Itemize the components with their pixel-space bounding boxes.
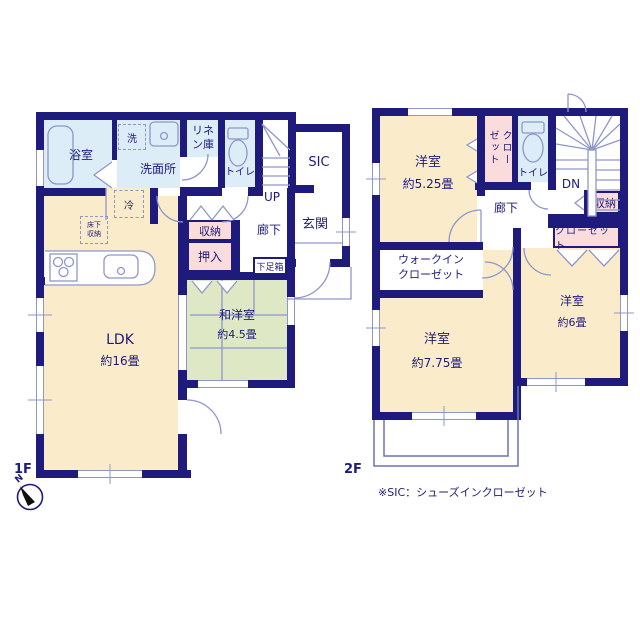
floor2-label: 2F [344, 462, 372, 478]
bedroom1-size-label: 約5.25畳 [396, 177, 460, 192]
sic-label: SIC [297, 155, 341, 171]
hallway-1f-label: 廊下 [249, 223, 289, 238]
toilet-1f-label: トイレ [225, 167, 255, 180]
toilet-2f-label: トイレ [518, 168, 548, 181]
bedroom2-size-label: 約7.75畳 [403, 356, 471, 371]
ldk-label: LDK [85, 332, 155, 350]
porch-outline [287, 267, 351, 299]
fixtures [28, 94, 634, 484]
stairs-up-icon [262, 124, 290, 185]
bathroom-label: 浴室 [59, 148, 103, 163]
toilet-icon-2f [522, 122, 544, 133]
stairs-up-label: UP [256, 190, 288, 205]
stairs-down-icon [556, 116, 620, 216]
ldk-size-label: 約16畳 [85, 354, 155, 369]
bedroom1-label: 洋室 [402, 155, 454, 171]
sic-note: ※SIC：シューズインクローゼット [378, 486, 598, 500]
bedroom3-label: 洋室 [548, 294, 596, 309]
stairs-down-label: DN [556, 177, 586, 192]
floor-plan: 収納 押入 下足箱 収納 クローゼット 洗 冷 床下収納 [0, 0, 640, 640]
fixtures-overlay [0, 0, 640, 640]
balcony-outline [374, 386, 518, 466]
washroom-label: 洗面所 [130, 162, 186, 177]
closet1-label: クローゼット [485, 128, 512, 168]
washitsu-label: 和洋室 [209, 308, 265, 323]
wic-label: ウォークインクローゼット [396, 252, 466, 283]
bedroom3-size-label: 約6畳 [550, 316, 594, 330]
bath-door-icon [94, 162, 112, 188]
linen-label: リネン庫 [190, 124, 216, 152]
toilet-icon-1f [228, 128, 248, 139]
door-arcs [157, 94, 586, 434]
hallway-2f-label: 廊下 [486, 201, 526, 216]
entrance-label: 玄関 [294, 217, 336, 233]
washitsu-size-label: 約4.5畳 [207, 328, 267, 342]
vanity-icon [150, 122, 178, 146]
bedroom2-label: 洋室 [411, 332, 463, 348]
compass-icon [18, 485, 43, 510]
